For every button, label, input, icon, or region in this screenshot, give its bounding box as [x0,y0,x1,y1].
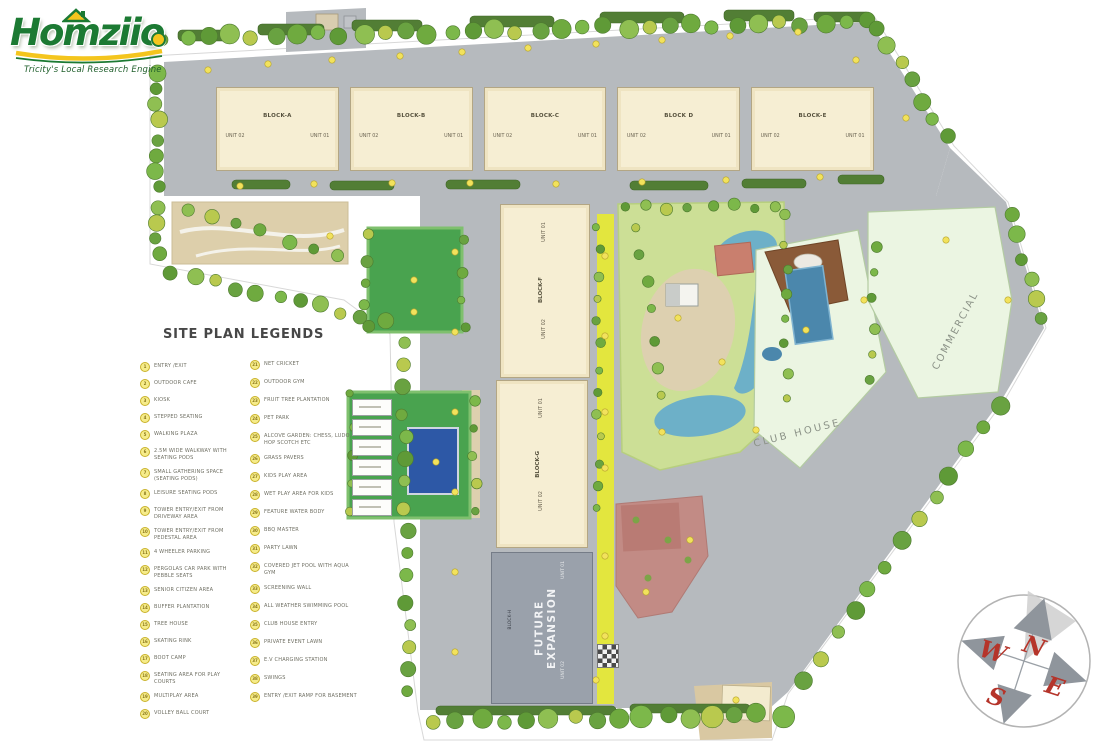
legend-number-badge: 5 [140,430,150,440]
legend-item: 25ALCOVE GARDEN: CHESS, LUDO, HOP SCOTCH… [250,432,360,446]
block-name-label: BLOCK-A [263,113,292,119]
legend-number-badge: 28 [250,490,260,500]
legend-number-badge: 21 [250,360,260,370]
unit-label: UNIT 01 [538,398,544,418]
unit-label: UNIT 02 [761,134,780,139]
legend-item-label: NET CRICKET [264,360,299,368]
legend-item: 3KIOSK [140,396,240,406]
unit-label: UNIT 01 [561,561,566,579]
legend-item: 30BBQ MASTER [250,526,360,536]
legend-item: 14BUFFER PLANTATION [140,603,240,613]
unit-label: UNIT 01 [310,134,329,139]
legend-item-label: TREE HOUSE [154,620,188,628]
legend-number-badge: 13 [140,586,150,596]
legend-item: 20VOLLEY BALL COURT [140,709,240,719]
legend-number-badge: 36 [250,638,260,648]
legend-number-badge: 12 [140,565,150,575]
residential-blocks-row: BLOCK-AUNIT 02UNIT 01BLOCK-BUNIT 02UNIT … [216,87,874,171]
legend-number-badge: 33 [250,584,260,594]
legend-number-badge: 2 [140,379,150,389]
legend-number-badge: 22 [250,378,260,388]
legend-item-label: BOOT CAMP [154,654,186,662]
legend-item: 24PET PARK [250,414,360,424]
future-expansion-label: FUTURE EXPANSION [533,569,558,687]
legend-number-badge: 10 [140,527,150,537]
residential-block: BLOCK DUNIT 02UNIT 01 [617,87,740,171]
legend-item-label: KIOSK [154,396,170,404]
legend-number-badge: 9 [140,506,150,516]
legend-item-label: COVERED JET POOL WITH AQUA GYM [264,562,360,576]
unit-label: UNIT 01 [578,134,597,139]
legend-item-label: TOWER ENTRY/EXIT FROM DRIVEWAY AREA [154,506,240,520]
legend-number-badge: 39 [250,692,260,702]
legend-number-badge: 32 [250,562,260,572]
residential-block: BLOCK-EUNIT 02UNIT 01 [751,87,874,171]
legend-item: 36PRIVATE EVENT LAWN [250,638,360,648]
residential-block: BLOCK-CUNIT 02UNIT 01 [484,87,607,171]
legend-item: 17BOOT CAMP [140,654,240,664]
legend-item: 15TREE HOUSE [140,620,240,630]
unit-label: UNIT 02 [493,134,512,139]
legend-item: 26GRASS PAVERS [250,454,360,464]
block-name-label: BLOCK-B [397,113,426,119]
legend-item: 33SCREENING WALL [250,584,360,594]
legend-item: 9TOWER ENTRY/EXIT FROM DRIVEWAY AREA [140,506,240,520]
legend-item-label: SCREENING WALL [264,584,311,592]
logo-tagline: Tricity's Local Research Engine [24,65,180,75]
unit-label: UNIT 01 [444,134,463,139]
legend-item-label: OUTDOOR CAFE [154,379,197,387]
legend-number-badge: 27 [250,472,260,482]
legend-item: 39ENTRY /EXIT RAMP FOR BASEMENT [250,692,360,702]
legend-item: 19MULTIPLAY AREA [140,692,240,702]
legend-number-badge: 3 [140,396,150,406]
legend-number-badge: 7 [140,468,150,478]
homziio-logo: Homziio Tricity's Local Research Engine [10,14,180,75]
legend-item-label: 2.5M WIDE WALKWAY WITH SEATING PODS [154,447,240,461]
legend-item-label: ENTRY /EXIT [154,362,187,370]
unit-label: UNIT 02 [541,319,547,339]
legend-item: 62.5M WIDE WALKWAY WITH SEATING PODS [140,447,240,461]
legend-number-badge: 34 [250,602,260,612]
legend-column-2: 21NET CRICKET22OUTDOOR GYM23FRUIT TREE P… [250,360,360,702]
compass-rose: N W E S [948,580,1100,742]
residential-block: BLOCK-AUNIT 02UNIT 01 [216,87,339,171]
legend-item: 2OUTDOOR CAFE [140,379,240,389]
legend-item: 37E.V CHARGING STATION [250,656,360,666]
legend-number-badge: 15 [140,620,150,630]
legend-item-label: BUFFER PLANTATION [154,603,209,611]
block-name-label: BLOCK D [664,113,693,119]
legend-number-badge: 37 [250,656,260,666]
legend-item-label: WET PLAY AREA FOR KIDS [264,490,333,498]
basement-ramp-marker [597,644,619,668]
block-name-label: BLOCK-H [508,610,513,630]
legend-item: 4STEPPED SEATING [140,413,240,423]
legend-item-label: GRASS PAVERS [264,454,304,462]
legend-item: 8LEISURE SEATING PODS [140,489,240,499]
legend-item-label: SMALL GATHERING SPACE (SEATING PODS) [154,468,240,482]
legend-item: 31PARTY LAWN [250,544,360,554]
legend-number-badge: 20 [140,709,150,719]
legend-number-badge: 30 [250,526,260,536]
legend-title: SITE PLAN LEGENDS [163,327,324,342]
legend-item: 29FEATURE WATER BODY [250,508,360,518]
house-roof-icon [62,7,92,23]
legend-number-badge: 29 [250,508,260,518]
legend-number-badge: 35 [250,620,260,630]
legend-number-badge: 25 [250,432,260,442]
legend-item-label: PARTY LAWN [264,544,298,552]
legend-item: 23FRUIT TREE PLANTATION [250,396,360,406]
legend-item: 35CLUB HOUSE ENTRY [250,620,360,630]
legend-item-label: TOWER ENTRY/EXIT FROM PEDESTAL AREA [154,527,240,541]
legend-item-label: PET PARK [264,414,289,422]
legend-number-badge: 16 [140,637,150,647]
legend-item-label: 4 WHEELER PARKING [154,548,210,556]
legend-item-label: PRIVATE EVENT LAWN [264,638,322,646]
legend-number-badge: 8 [140,489,150,499]
unit-label: UNIT 02 [359,134,378,139]
unit-label: UNIT 02 [538,491,544,511]
legend-item-label: MULTIPLAY AREA [154,692,198,700]
legend-number-badge: 11 [140,548,150,558]
legend-item: 32COVERED JET POOL WITH AQUA GYM [250,562,360,576]
block-name-label: BLOCK-G [535,451,541,478]
block-name-label: BLOCK-C [531,113,559,119]
legend-item: 22OUTDOOR GYM [250,378,360,388]
legend-item-label: FRUIT TREE PLANTATION [264,396,330,404]
legend-item: 21NET CRICKET [250,360,360,370]
legend-item-label: SEATING AREA FOR PLAY COURTS [154,671,240,685]
unit-label: UNIT 01 [541,222,547,242]
legend-item: 10TOWER ENTRY/EXIT FROM PEDESTAL AREA [140,527,240,541]
legend-item-label: CLUB HOUSE ENTRY [264,620,317,628]
yellow-walkway [597,214,614,704]
legend-item: 28WET PLAY AREA FOR KIDS [250,490,360,500]
legend-item-label: PERGOLAS CAR PARK WITH PEBBLE SEATS [154,565,240,579]
legend-item-label: VOLLEY BALL COURT [154,709,209,717]
legend-item-label: E.V CHARGING STATION [264,656,328,664]
legend-number-badge: 1 [140,362,150,372]
unit-label: UNIT 01 [845,134,864,139]
legend-item-label: KIDS PLAY AREA [264,472,307,480]
legend-item: 7SMALL GATHERING SPACE (SEATING PODS) [140,468,240,482]
legend-item-label: OUTDOOR GYM [264,378,305,386]
legend-item-label: BBQ MASTER [264,526,299,534]
legend-item-label: SKATING RINK [154,637,192,645]
unit-label: UNIT 01 [712,134,731,139]
residential-block: BLOCK-BUNIT 02UNIT 01 [350,87,473,171]
legend-number-badge: 6 [140,447,150,457]
legend-item: 16SKATING RINK [140,637,240,647]
legend-item-label: ALCOVE GARDEN: CHESS, LUDO, HOP SCOTCH E… [264,432,360,446]
legend-item: 5WALKING PLAZA [140,430,240,440]
legend-number-badge: 26 [250,454,260,464]
legend-number-badge: 38 [250,674,260,684]
legend-column-1: 1ENTRY /EXIT2OUTDOOR CAFE3KIOSK4STEPPED … [140,362,240,719]
legend-number-badge: 24 [250,414,260,424]
legend-number-badge: 17 [140,654,150,664]
legend-item: 34ALL WEATHER SWIMMING POOL [250,602,360,612]
legend-item-label: SWINGS [264,674,286,682]
legend-item: 18SEATING AREA FOR PLAY COURTS [140,671,240,685]
legend-number-badge: 19 [140,692,150,702]
legend-item-label: FEATURE WATER BODY [264,508,325,516]
legend-number-badge: 4 [140,413,150,423]
legend-item: 114 WHEELER PARKING [140,548,240,558]
legend-item: 27KIDS PLAY AREA [250,472,360,482]
tower-block-g: UNIT 01 BLOCK-G UNIT 02 [496,380,588,548]
legend-item-label: SENIOR CITIZEN AREA [154,586,213,594]
legend-item: 1ENTRY /EXIT [140,362,240,372]
legend-item: 38SWINGS [250,674,360,684]
legend-item-label: WALKING PLAZA [154,430,198,438]
legend-item: 13SENIOR CITIZEN AREA [140,586,240,596]
block-name-label: BLOCK-E [799,113,827,119]
unit-label: UNIT 02 [627,134,646,139]
legend-item-label: LEISURE SEATING PODS [154,489,218,497]
legend-item-label: ALL WEATHER SWIMMING POOL [264,602,348,610]
future-expansion-block: UNIT 01 BLOCK-H FUTURE EXPANSION UNIT 02 [491,552,593,704]
legend-number-badge: 31 [250,544,260,554]
legend-number-badge: 23 [250,396,260,406]
legend-item: 12PERGOLAS CAR PARK WITH PEBBLE SEATS [140,565,240,579]
unit-label: UNIT 02 [561,661,566,679]
legend-number-badge: 14 [140,603,150,613]
tower-block-f: UNIT 01 BLOCK-F UNIT 02 [500,204,590,378]
legend-item-label: ENTRY /EXIT RAMP FOR BASEMENT [264,692,357,700]
sun-icon [151,32,166,47]
block-name-label: BLOCK-F [538,277,544,303]
legend-item-label: STEPPED SEATING [154,413,203,421]
legend-number-badge: 18 [140,671,150,681]
unit-label: UNIT 02 [225,134,244,139]
